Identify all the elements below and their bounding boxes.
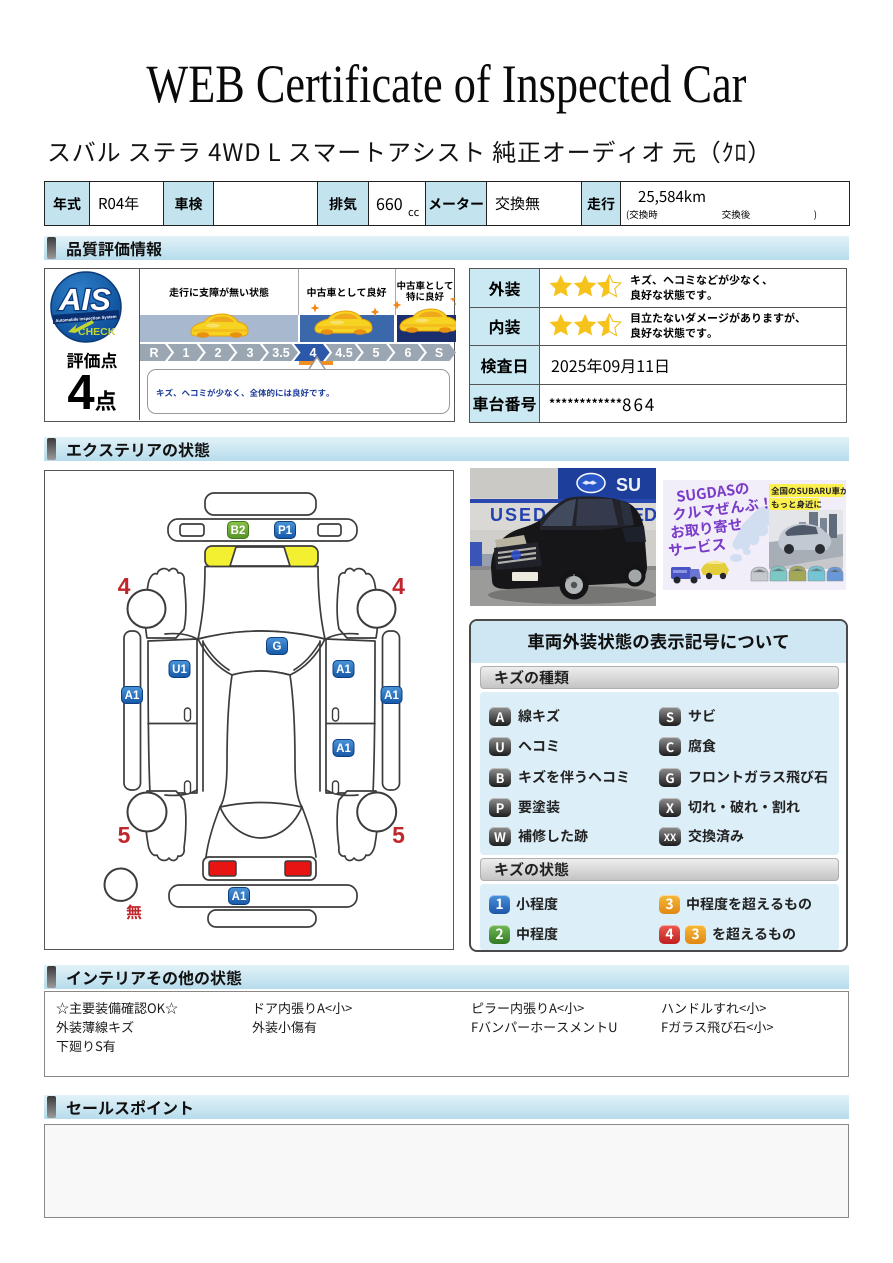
svg-text:G: G — [273, 641, 282, 653]
svg-text:5: 5 — [373, 346, 380, 360]
svg-text:SU: SU — [616, 475, 641, 495]
svg-text:A1: A1 — [336, 664, 351, 676]
svg-text:3: 3 — [247, 346, 254, 360]
svg-text:6: 6 — [405, 346, 412, 360]
svg-text:B2: B2 — [231, 525, 246, 537]
svg-text:U1: U1 — [172, 664, 187, 676]
svg-text:1: 1 — [183, 346, 190, 360]
svg-text:4: 4 — [118, 573, 131, 599]
svg-text:2: 2 — [215, 346, 222, 360]
svg-text:4.5: 4.5 — [335, 346, 352, 360]
svg-text:A1: A1 — [384, 690, 399, 702]
svg-text:無: 無 — [126, 899, 142, 923]
svg-text:もっと身近に: もっと身近に — [771, 499, 822, 511]
svg-text:P1: P1 — [278, 525, 293, 537]
svg-text:3.5: 3.5 — [272, 346, 289, 360]
svg-text:A1: A1 — [125, 690, 140, 702]
svg-text:R: R — [149, 346, 158, 360]
svg-text:4: 4 — [392, 573, 405, 599]
svg-text:A1: A1 — [232, 891, 247, 903]
svg-text:S: S — [435, 346, 443, 360]
svg-text:CHECK: CHECK — [78, 326, 116, 338]
svg-text:全国のSUBARU車が: 全国のSUBARU車が — [771, 485, 846, 497]
svg-text:5: 5 — [118, 822, 131, 848]
svg-text:5: 5 — [392, 822, 405, 848]
svg-text:A1: A1 — [336, 743, 351, 755]
